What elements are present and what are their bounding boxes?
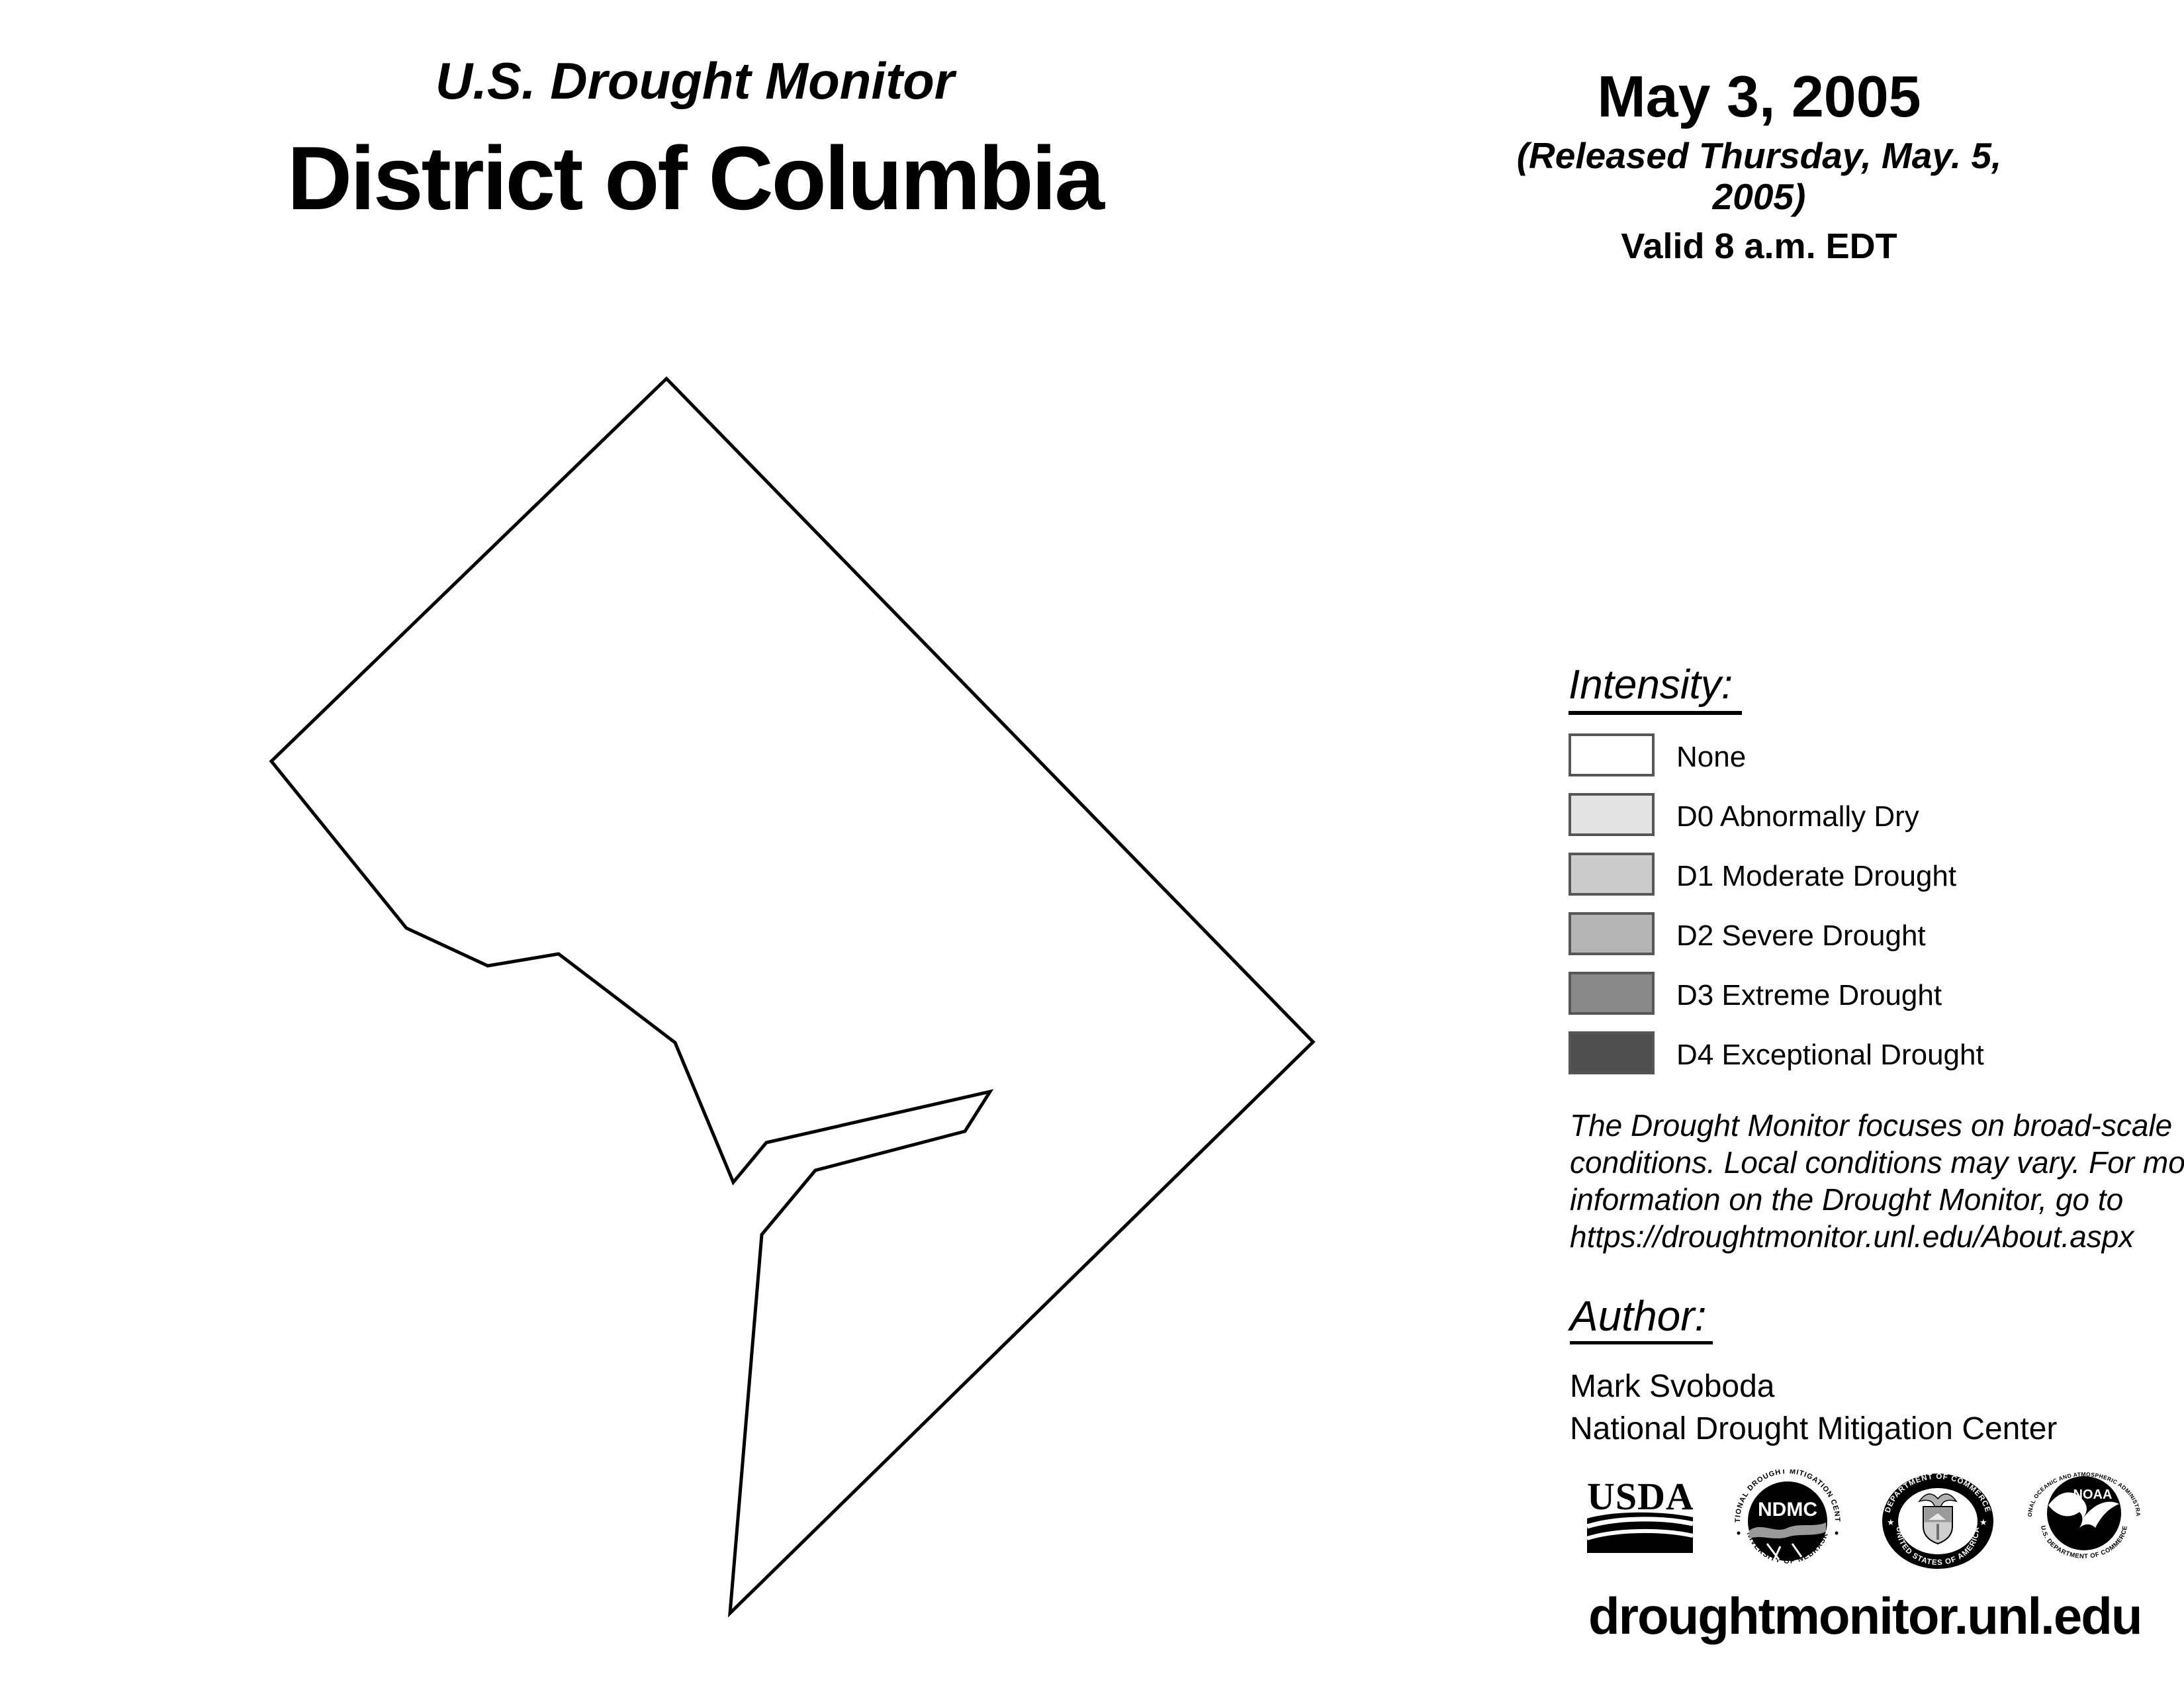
legend-rows: None D0 Abnormally Dry D1 Moderate Droug…: [1569, 733, 1984, 1074]
commerce-logo: DEPARTMENT OF COMMERCE UNITED STATES OF …: [1881, 1472, 1995, 1570]
author-block: Author: Mark Svoboda National Drought Mi…: [1570, 1292, 2057, 1448]
droughtmonitor-url: droughtmonitor.unl.edu: [1588, 1586, 2118, 1646]
intensity-legend: Intensity: None D0 Abnormally Dry D1 Mod…: [1569, 662, 1984, 1091]
legend-label: D4 Exceptional Drought: [1676, 1035, 1984, 1072]
swatch-d4: [1569, 1031, 1655, 1074]
report-title-block: U.S. Drought Monitor District of Columbi…: [99, 53, 1291, 228]
legend-label: None: [1676, 737, 1746, 774]
page-title: District of Columbia: [99, 128, 1291, 228]
dc-boundary-outline: [271, 379, 1313, 1613]
swatch-d1: [1569, 853, 1655, 896]
legend-label: D2 Severe Drought: [1676, 915, 1926, 953]
swatch-d0: [1569, 793, 1655, 836]
disclaimer-line: information on the Drought Monitor, go t…: [1570, 1181, 2184, 1218]
legend-heading: Intensity:: [1569, 662, 1742, 715]
disclaimer-line: The Drought Monitor focuses on broad-sca…: [1570, 1107, 2184, 1144]
author-organization: National Drought Mitigation Center: [1570, 1411, 2057, 1448]
usda-wordmark: USDA: [1587, 1477, 1693, 1518]
author-heading: Author:: [1570, 1292, 1713, 1344]
ndmc-monogram: NDMC: [1758, 1499, 1817, 1521]
ndmc-ring-dot-left: [1737, 1532, 1741, 1535]
author-name: Mark Svoboda: [1570, 1368, 2057, 1405]
commerce-star-left: ★: [1887, 1517, 1895, 1527]
released-date: (Released Thursday, May. 5, 2005): [1494, 135, 2024, 217]
legend-label: D1 Moderate Drought: [1676, 856, 1956, 893]
swatch-d3: [1569, 972, 1655, 1015]
legend-row-d3: D3 Extreme Drought: [1569, 972, 1984, 1015]
ndmc-ring-dot-right: [1835, 1532, 1839, 1535]
legend-label: D0 Abnormally Dry: [1676, 796, 1919, 833]
legend-row-d1: D1 Moderate Drought: [1569, 853, 1984, 896]
legend-label: D3 Extreme Drought: [1676, 975, 1942, 1012]
legend-row-d4: D4 Exceptional Drought: [1569, 1031, 1984, 1074]
commerce-star-right: ★: [1979, 1517, 1987, 1527]
ndmc-logo: NATIONAL DROUGHT MITIGATION CENTER UNIVE…: [1727, 1470, 1848, 1573]
disclaimer-text: The Drought Monitor focuses on broad-sca…: [1570, 1107, 2184, 1255]
report-kicker: U.S. Drought Monitor: [99, 53, 1291, 109]
legend-row-d0: D0 Abnormally Dry: [1569, 793, 1984, 836]
legend-row-none: None: [1569, 733, 1984, 776]
swatch-d2: [1569, 912, 1655, 955]
map-date: May 3, 2005: [1494, 65, 2024, 128]
date-block: May 3, 2005 (Released Thursday, May. 5, …: [1494, 65, 2024, 266]
commerce-lighthouse: [1936, 1524, 1939, 1540]
disclaimer-line: conditions. Local conditions may vary. F…: [1570, 1144, 2184, 1181]
noaa-logo: NATIONAL OCEANIC AND ATMOSPHERIC ADMINIS…: [2026, 1471, 2142, 1568]
legend-row-d2: D2 Severe Drought: [1569, 912, 1984, 955]
usda-logo: USDA: [1587, 1477, 1693, 1553]
swatch-none: [1569, 733, 1655, 776]
disclaimer-line: https://droughtmonitor.unl.edu/About.asp…: [1570, 1218, 2184, 1255]
noaa-monogram: NOAA: [2073, 1487, 2113, 1502]
ndmc-disc: [1748, 1481, 1827, 1561]
valid-time: Valid 8 a.m. EDT: [1494, 226, 2024, 266]
